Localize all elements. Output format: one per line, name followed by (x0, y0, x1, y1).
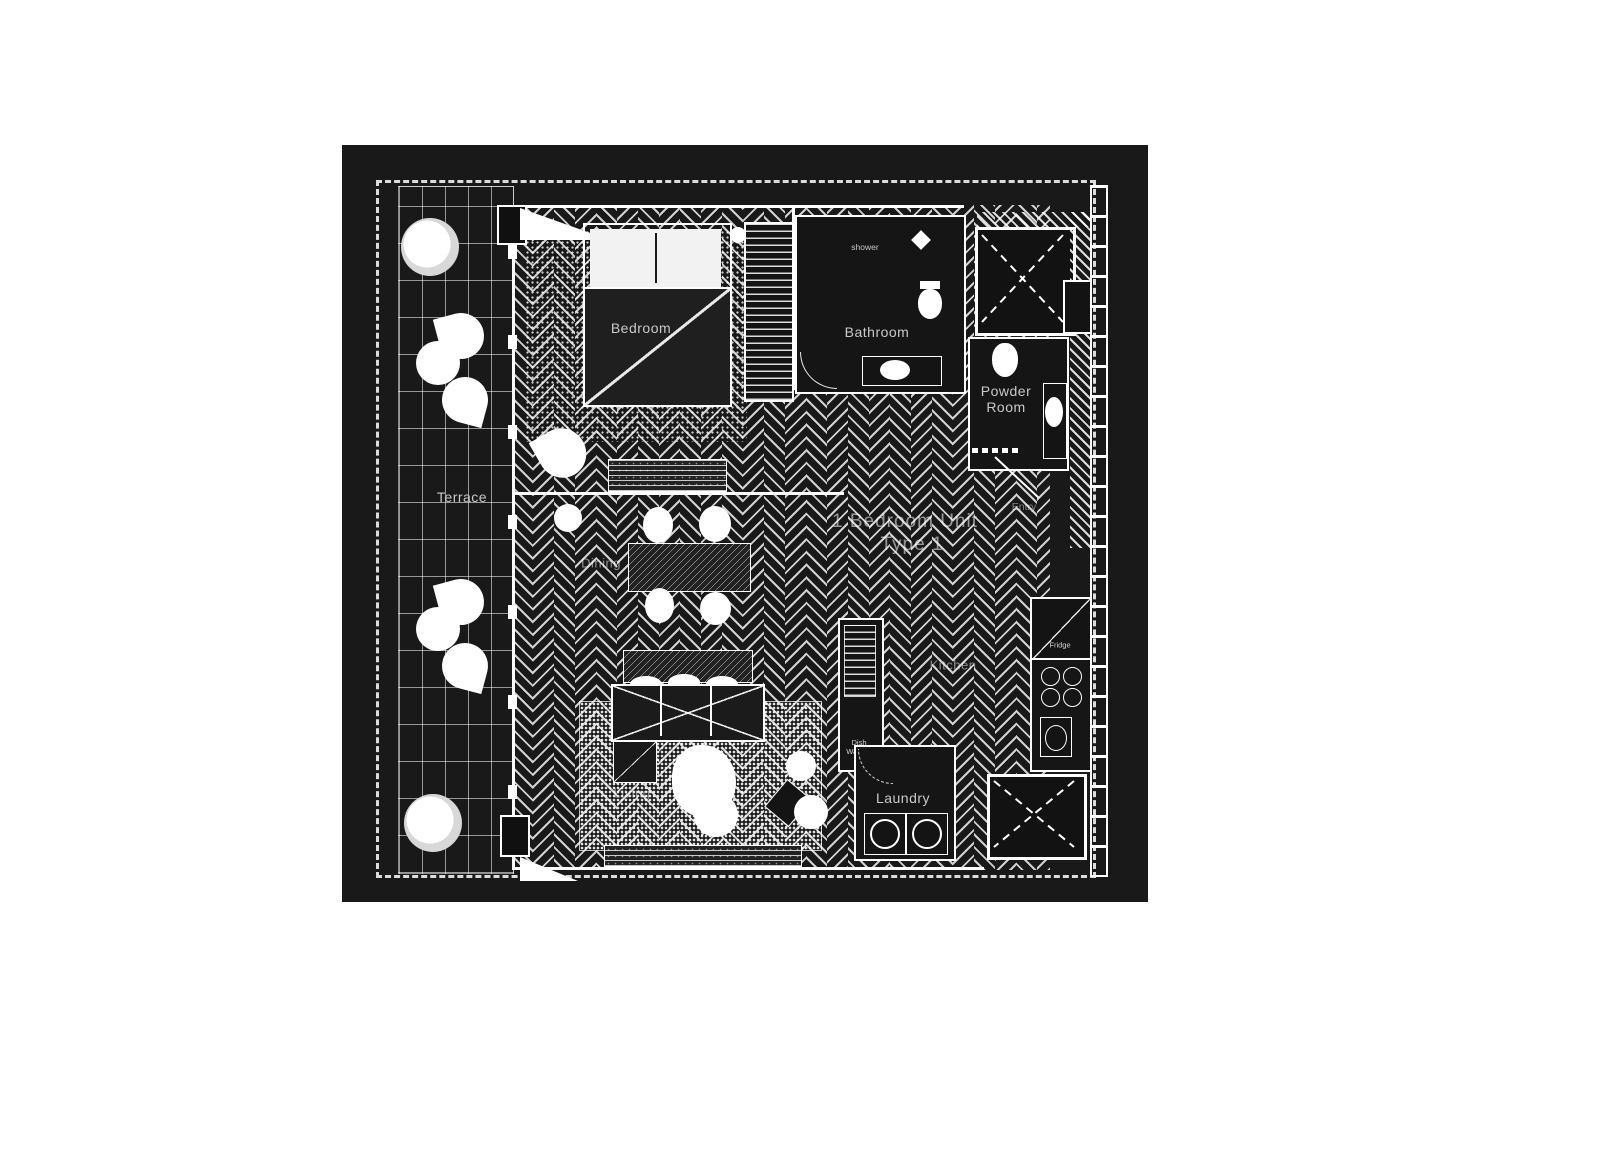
shower-label: shower (851, 242, 878, 252)
powder-room-label: Powder Room (981, 383, 1031, 415)
shrub-icon (416, 341, 460, 385)
unit-title-line2: Type 1 (880, 534, 943, 556)
daybed (608, 459, 727, 492)
entry-label: Entry (1012, 501, 1037, 513)
glazing-mullion (508, 335, 517, 349)
bathroom-label: Bathroom (845, 324, 910, 340)
plant-icon (554, 504, 582, 532)
exterior-wall-bottom (512, 867, 984, 870)
dining-chair (700, 592, 731, 625)
terrace-area (398, 186, 514, 874)
sofa-divider (710, 686, 712, 736)
glazing-mullion (508, 605, 517, 619)
burner-icon (1063, 688, 1082, 707)
ottoman (613, 741, 657, 783)
burner-icon (1041, 667, 1060, 686)
living-label: Living (614, 786, 651, 801)
toilet-icon (920, 281, 940, 289)
threshold-dashes (972, 448, 1018, 453)
glazing-mullion (508, 515, 517, 529)
dining-label: Dining (581, 556, 621, 571)
pillow-divider (655, 233, 657, 283)
floor-plan: Terrace Bedroom (342, 145, 1148, 902)
fridge (1030, 597, 1092, 662)
column-block (500, 815, 530, 857)
bedroom-label: Bedroom (611, 320, 671, 336)
glazing-mullion (508, 695, 517, 709)
dining-table (628, 543, 751, 592)
plant-icon (694, 793, 738, 837)
laundry-label: Laundry (876, 790, 930, 806)
glazing-mullion (508, 785, 517, 799)
unit-title-line1: 1 Bedroom Unit (832, 511, 978, 533)
elevator-shaft (975, 227, 1076, 336)
sofa (611, 684, 765, 742)
kitchen-label: Kitchen (930, 658, 977, 673)
tree-icon (404, 794, 462, 852)
glazing-mullion (508, 425, 517, 439)
glazing-wall (512, 205, 515, 870)
dining-chair (645, 588, 674, 623)
sofa-divider (660, 686, 662, 736)
dryer-drum-icon (912, 819, 942, 849)
page: Terrace Bedroom (0, 0, 1600, 1153)
burner-icon (1041, 688, 1060, 707)
sink-icon (1045, 725, 1067, 751)
sink-icon (880, 360, 910, 380)
grid-ladder (1090, 185, 1108, 877)
exterior-wall-top (512, 205, 964, 208)
fridge-label: Fridge (1049, 641, 1070, 650)
shrub-icon (416, 607, 460, 651)
elevator-shaft (987, 774, 1087, 860)
powder-room-label-line2: Room (981, 399, 1031, 415)
dishwasher-rack (844, 625, 876, 697)
toilet-icon (992, 343, 1018, 377)
toilet-icon (918, 289, 942, 319)
burner-icon (1063, 667, 1082, 686)
core-wall-hatch (1070, 212, 1092, 548)
dining-chair (699, 506, 731, 542)
bed-duvet (583, 287, 732, 407)
hall-wall (512, 492, 844, 495)
elevator-x-icon (990, 777, 1078, 851)
tv-console (604, 845, 802, 867)
column-block (1063, 280, 1092, 334)
plant-icon (786, 751, 816, 781)
powder-room-label-line1: Powder (981, 383, 1031, 399)
washer-drum-icon (870, 819, 900, 849)
glazing-mullion (508, 245, 517, 259)
elevator-x-icon (978, 230, 1067, 327)
wardrobe (744, 222, 794, 402)
plant-icon (794, 795, 828, 829)
sink-icon (1045, 397, 1063, 427)
tree-icon (401, 218, 459, 276)
terrace-label: Terrace (437, 489, 487, 505)
dining-chair (643, 507, 673, 543)
